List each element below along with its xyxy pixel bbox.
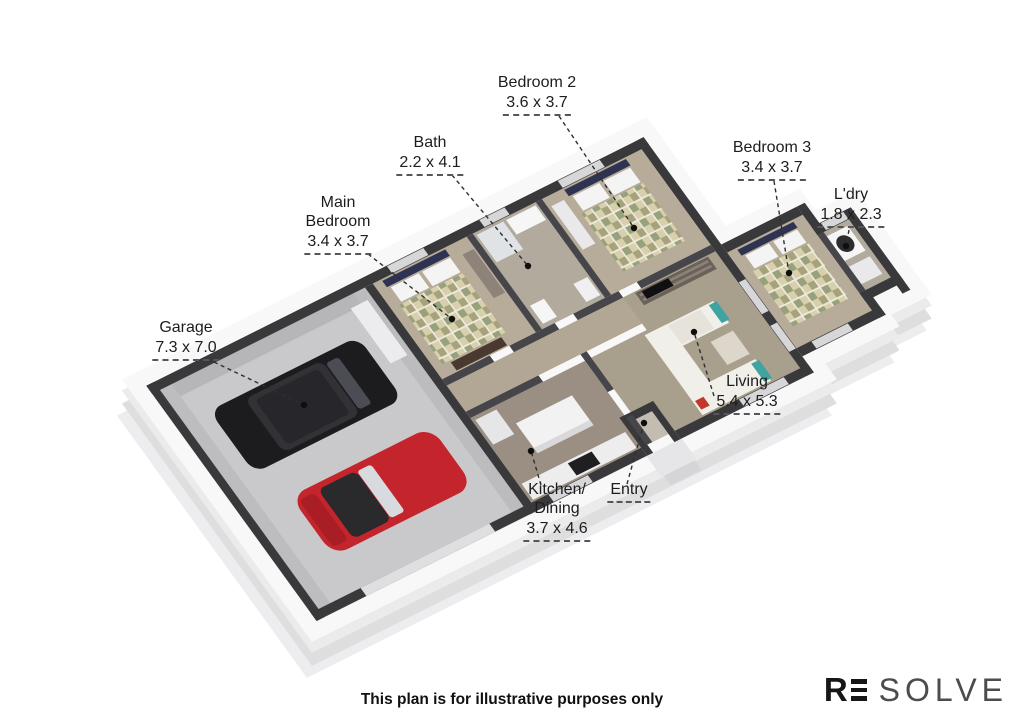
room-dims: 1.8 x 2.3 bbox=[817, 206, 884, 228]
room-dims: 5.4 x 5.3 bbox=[713, 393, 780, 415]
logo-e-icon bbox=[851, 679, 867, 701]
label-laundry: L'dry 1.8 x 2.3 bbox=[817, 186, 884, 228]
room-dims: 3.4 x 3.7 bbox=[738, 159, 805, 181]
room-name: L'dry bbox=[817, 186, 884, 205]
room-dot-garage bbox=[301, 402, 307, 408]
room-name: Garage bbox=[152, 319, 219, 338]
label-bedroom2: Bedroom 2 3.6 x 3.7 bbox=[498, 74, 576, 116]
room-name: Kitchen/ bbox=[523, 481, 590, 500]
room-dims: 3.6 x 3.7 bbox=[503, 94, 570, 116]
label-garage: Garage 7.3 x 7.0 bbox=[152, 319, 219, 361]
label-kitchen: Kitchen/ Dining 3.7 x 4.6 bbox=[523, 481, 590, 542]
room-dims: 2.2 x 4.1 bbox=[396, 154, 463, 176]
room-dot-entry bbox=[641, 420, 647, 426]
disclaimer-text: This plan is for illustrative purposes o… bbox=[361, 691, 663, 709]
room-name-line2: Bedroom bbox=[304, 213, 371, 232]
room-name: Entry bbox=[607, 481, 650, 503]
room-dot-laundry bbox=[843, 243, 849, 249]
room-dot-kitchen bbox=[528, 448, 534, 454]
logo-r: R bbox=[824, 671, 848, 709]
room-dot-main-bedroom bbox=[449, 316, 455, 322]
room-name: Bath bbox=[396, 134, 463, 153]
room-name: Living bbox=[713, 373, 780, 392]
label-bath: Bath 2.2 x 4.1 bbox=[396, 134, 463, 176]
label-living: Living 5.4 x 5.3 bbox=[713, 373, 780, 415]
room-dims: 3.4 x 3.7 bbox=[304, 233, 371, 255]
logo-solve: SOLVE bbox=[879, 672, 1008, 709]
room-name: Main bbox=[304, 194, 371, 213]
room-dot-bedroom3 bbox=[786, 270, 792, 276]
room-name: Bedroom 2 bbox=[498, 74, 576, 93]
room-dims: 7.3 x 7.0 bbox=[152, 339, 219, 361]
label-main-bedroom: Main Bedroom 3.4 x 3.7 bbox=[304, 194, 371, 255]
room-dims: 3.7 x 4.6 bbox=[523, 520, 590, 542]
label-entry: Entry bbox=[607, 481, 650, 503]
room-dot-bedroom2 bbox=[631, 225, 637, 231]
floor-plan: Bedroom 2 3.6 x 3.7 Bath 2.2 x 4.1 Bedro… bbox=[0, 0, 1024, 725]
resolve-logo: R E SOLVE bbox=[824, 671, 1008, 709]
room-name-line2: Dining bbox=[523, 500, 590, 519]
room-name: Bedroom 3 bbox=[733, 139, 811, 158]
room-dot-bath bbox=[525, 263, 531, 269]
label-bedroom3: Bedroom 3 3.4 x 3.7 bbox=[733, 139, 811, 181]
room-dot-living bbox=[691, 329, 697, 335]
